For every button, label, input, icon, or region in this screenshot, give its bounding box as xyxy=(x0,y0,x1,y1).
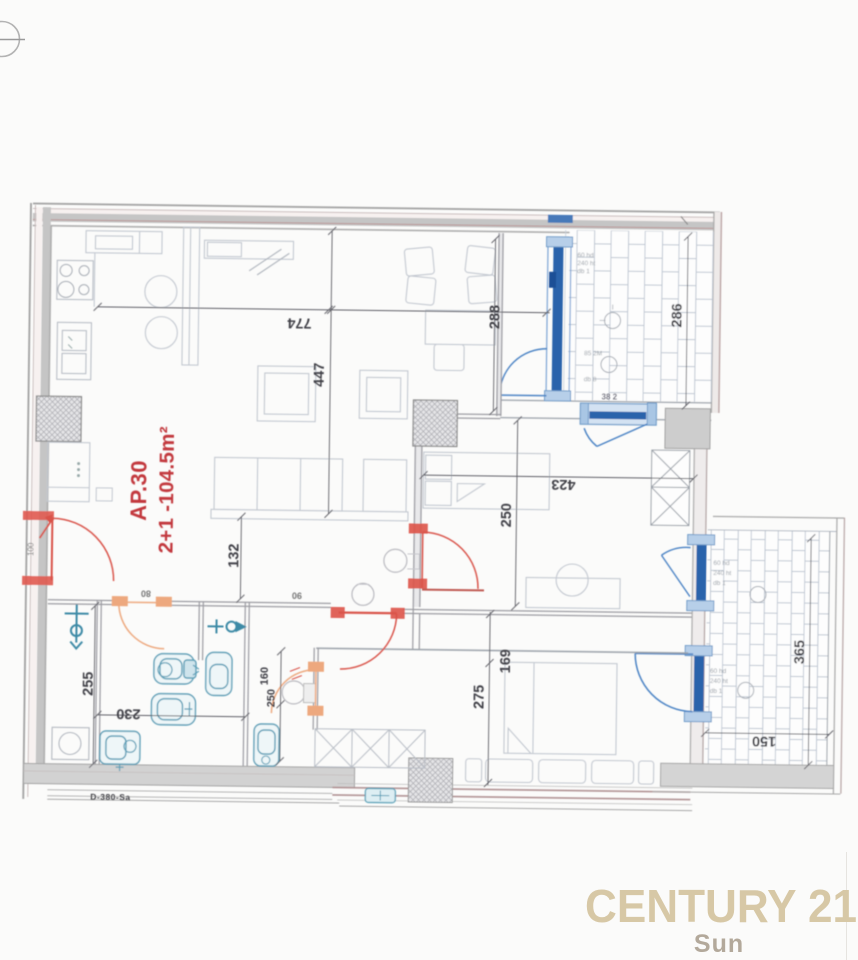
svg-text:db 1: db 1 xyxy=(713,580,726,587)
svg-text:60 hd: 60 hd xyxy=(577,252,594,259)
svg-text:240 ht: 240 ht xyxy=(713,570,731,577)
svg-text:250: 250 xyxy=(265,689,277,708)
svg-text:150: 150 xyxy=(752,732,776,748)
svg-text:90: 90 xyxy=(292,590,302,600)
svg-text:169: 169 xyxy=(498,649,514,673)
svg-text:447: 447 xyxy=(312,363,328,387)
svg-text:db 8: db 8 xyxy=(584,376,597,383)
svg-text:db 1: db 1 xyxy=(710,688,723,695)
svg-text:240 ht: 240 ht xyxy=(710,678,728,685)
svg-text:AP.30: AP.30 xyxy=(126,460,152,521)
svg-text:85 2M: 85 2M xyxy=(584,350,602,357)
svg-text:db 1: db 1 xyxy=(577,268,590,275)
svg-text:250: 250 xyxy=(499,503,515,527)
svg-text:275: 275 xyxy=(471,685,487,709)
svg-text:160: 160 xyxy=(259,667,271,686)
svg-text:365: 365 xyxy=(792,640,808,664)
svg-text:D-380-Sa: D-380-Sa xyxy=(90,792,131,803)
svg-text:2+1 -104.5m²: 2+1 -104.5m² xyxy=(154,426,179,554)
svg-text:286: 286 xyxy=(669,303,685,327)
svg-text:774: 774 xyxy=(287,314,311,330)
svg-text:240 ht: 240 ht xyxy=(577,260,595,267)
svg-text:60 hd: 60 hd xyxy=(713,560,730,567)
svg-text:Sun: Sun xyxy=(694,930,744,958)
svg-text:38 2: 38 2 xyxy=(601,392,617,401)
svg-text:132: 132 xyxy=(226,543,242,567)
svg-text:CENTURY 21: CENTURY 21 xyxy=(585,880,857,932)
svg-text:230: 230 xyxy=(116,705,140,721)
svg-text:60 hd: 60 hd xyxy=(710,668,727,675)
svg-text:423: 423 xyxy=(551,476,575,492)
svg-text:80: 80 xyxy=(141,588,151,598)
svg-text:288: 288 xyxy=(487,305,503,329)
svg-text:100: 100 xyxy=(26,542,35,556)
svg-text:255: 255 xyxy=(81,672,97,696)
